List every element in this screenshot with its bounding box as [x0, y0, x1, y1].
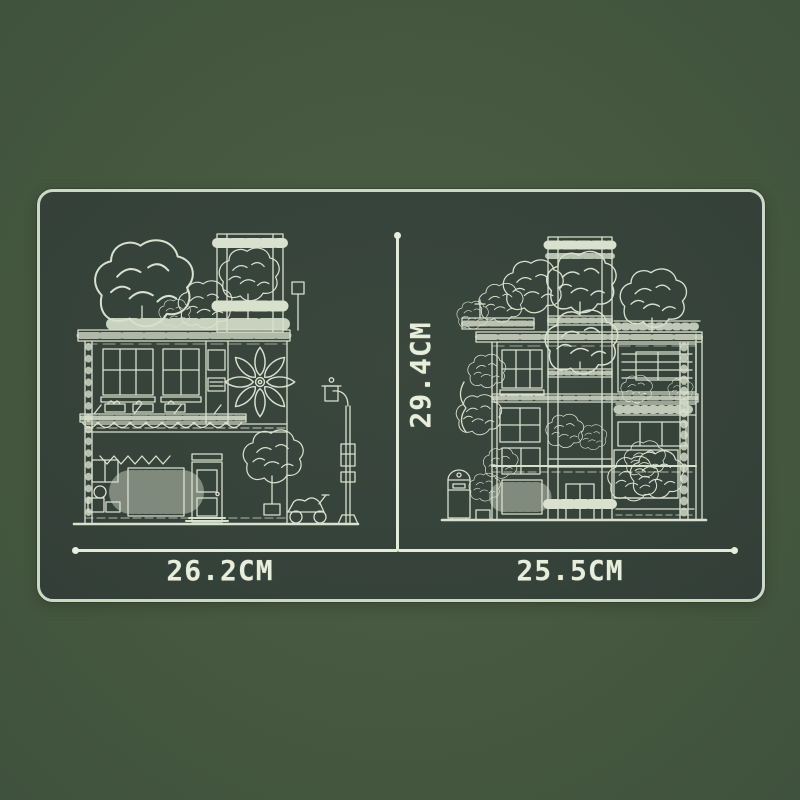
left-building-blueprint [74, 234, 358, 524]
sign-frame [217, 234, 283, 332]
right-width-endpoint-dot [731, 547, 738, 554]
left-width-label: 26.2CM [120, 554, 320, 588]
scooter [288, 495, 329, 523]
height-dimension-line [396, 235, 399, 550]
roof-garden [95, 240, 284, 328]
roof-slab [476, 332, 702, 342]
height-label: 29.4CM [404, 300, 438, 450]
left-width-endpoint-dot [72, 547, 79, 554]
product-dimension-image: 26.2CM 25.5CM 29.4CM [0, 0, 800, 800]
second-floor-windows [101, 341, 228, 424]
height-dimension-endpoint-dot [394, 232, 401, 239]
ground-floor [88, 454, 228, 522]
right-building-blueprint [442, 237, 706, 520]
third-floor [500, 408, 686, 474]
panel-content: 26.2CM 25.5CM 29.4CM [40, 192, 762, 599]
street-lamp [322, 378, 358, 524]
ground-floor-shop [476, 480, 542, 520]
blueprint-panel: 26.2CM 25.5CM 29.4CM [37, 189, 765, 602]
right-width-label: 25.5CM [470, 554, 670, 588]
blueprint-drawings [40, 192, 762, 599]
left-width-dimension-line [75, 549, 398, 552]
tower-frame [548, 237, 612, 520]
postbox [448, 470, 470, 520]
roof-garden-left [457, 260, 563, 329]
right-width-dimension-line [398, 549, 734, 552]
roof-garden-right [614, 269, 700, 332]
tower-trees [545, 252, 618, 450]
hanging-vegetation [456, 354, 518, 501]
ventilation-fan [225, 347, 294, 416]
